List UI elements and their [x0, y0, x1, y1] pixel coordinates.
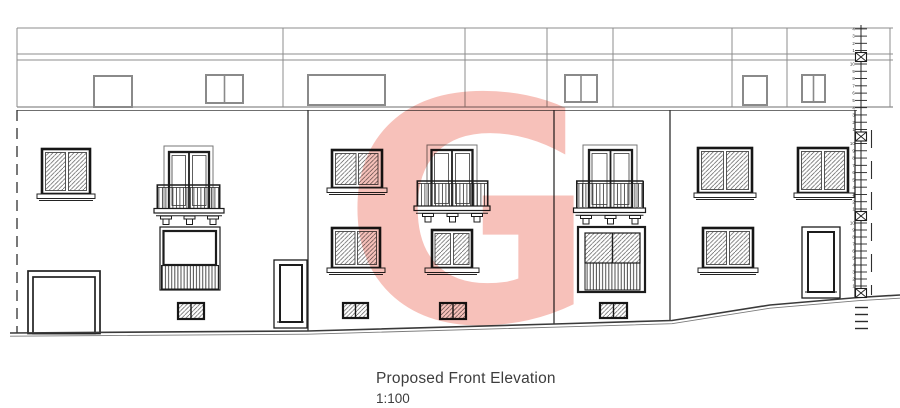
underground-dashes [855, 308, 868, 329]
svg-text:2: 2 [852, 41, 855, 46]
level-staff-ticks: 4321109876543211098765432110987654321 [850, 27, 867, 298]
garage-door [28, 271, 100, 334]
window-sill [794, 193, 854, 200]
svg-text:10: 10 [850, 141, 855, 146]
svg-text:4: 4 [852, 27, 855, 32]
roof-door [743, 76, 767, 105]
svg-text:6: 6 [852, 91, 855, 96]
window-hatched [42, 149, 90, 194]
svg-text:9: 9 [852, 69, 855, 74]
house-4 [694, 148, 854, 298]
drawing-scale: 1:100 [376, 391, 556, 406]
watermark-logo: G [342, 34, 596, 395]
house-1 [28, 146, 307, 334]
elevation-sheet: 4321109876543211098765432110987654321 G … [0, 0, 900, 408]
window-sill [694, 193, 756, 200]
roof-window-double [802, 75, 825, 102]
window-sill [698, 268, 758, 275]
window-sill [37, 194, 95, 201]
svg-text:5: 5 [852, 98, 855, 103]
roof-opening [94, 76, 132, 107]
vent-hatched [178, 303, 204, 319]
lower-opening-louvred [160, 227, 220, 290]
window-hatched [798, 148, 848, 193]
svg-text:4: 4 [852, 105, 855, 110]
balcony [154, 146, 224, 225]
elevation-drawing: 4321109876543211098765432110987654321 G [0, 0, 900, 408]
roof-window-double [206, 75, 243, 103]
entrance-door [802, 227, 840, 298]
svg-text:10: 10 [850, 221, 855, 226]
svg-text:10: 10 [850, 62, 855, 67]
window-hatched [703, 228, 753, 268]
entrance-door [274, 260, 307, 328]
level-staff: 4321109876543211098765432110987654321 [850, 25, 872, 329]
window-hatched [698, 148, 752, 193]
svg-text:1: 1 [852, 48, 855, 53]
svg-text:7: 7 [852, 83, 855, 88]
corbels [161, 216, 219, 225]
svg-text:3: 3 [852, 34, 855, 39]
drawing-title: Proposed Front Elevation [376, 370, 556, 388]
drawing-caption: Proposed Front Elevation 1:100 [376, 370, 556, 406]
vent-hatched [600, 303, 627, 318]
svg-text:8: 8 [852, 76, 855, 81]
